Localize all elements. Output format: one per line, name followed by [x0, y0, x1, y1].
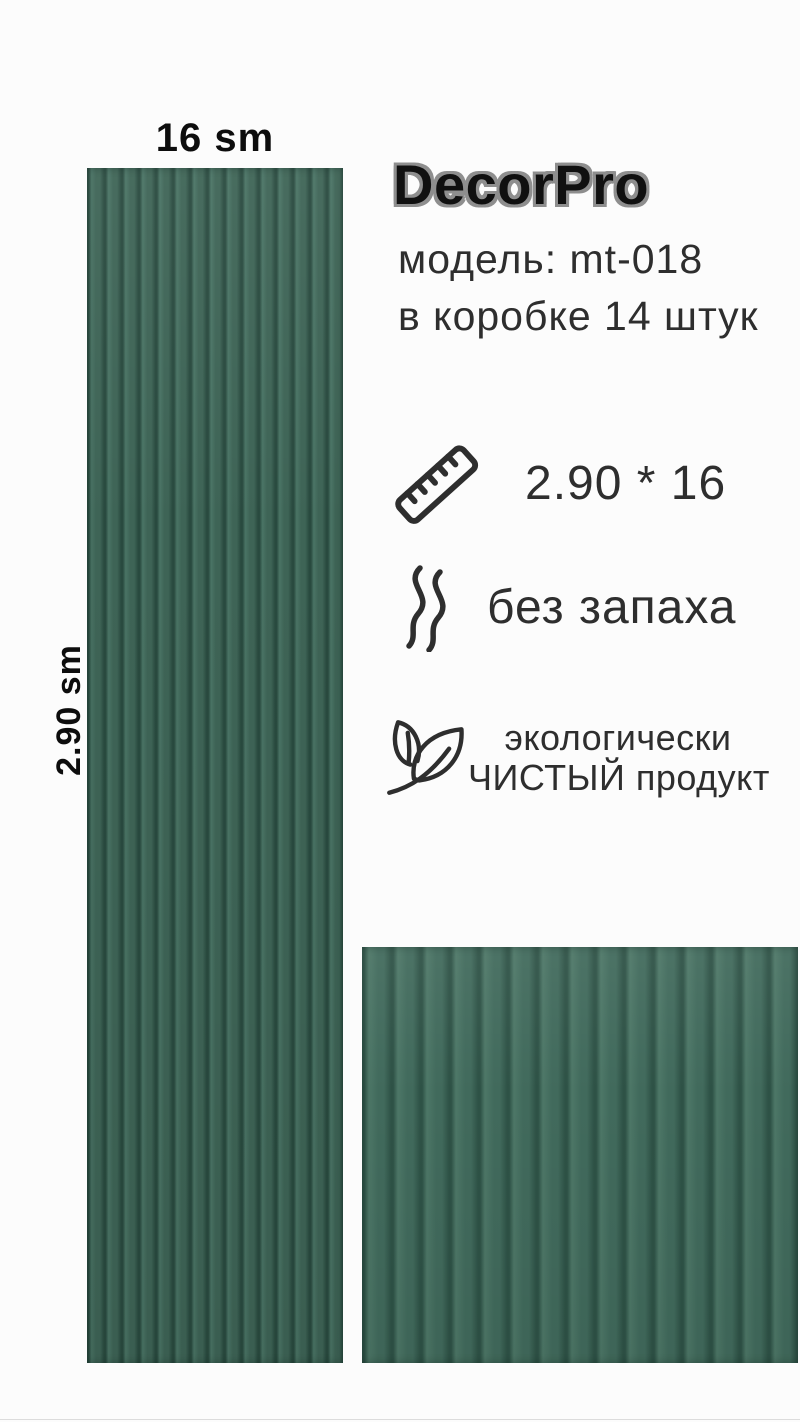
scent-icon [396, 562, 458, 652]
panel-photo-full [87, 168, 343, 1363]
feature-eco-line2: ЧИСТЫЙ продукт [468, 758, 768, 798]
image-bottom-edge [0, 1419, 800, 1420]
panel-photo-closeup [362, 947, 798, 1363]
brand-logo: DecorPro [393, 152, 649, 217]
leaf-icon [384, 708, 472, 800]
feature-size-text: 2.90 * 16 [525, 456, 726, 511]
feature-scent-text: без запаха [487, 580, 736, 635]
ruler-icon [388, 436, 486, 534]
panel-height-label: 2.90 sm [49, 640, 89, 780]
panel-width-label: 16 sm [87, 116, 343, 161]
product-card: 16 sm 2.90 sm DecorPro модель: mt-018 в … [0, 0, 800, 1422]
box-quantity-text: в коробке 14 штук [398, 293, 759, 340]
model-number-text: модель: mt-018 [398, 236, 703, 283]
feature-eco-text: экологически ЧИСТЫЙ продукт [468, 718, 768, 798]
feature-eco-line1: экологически [468, 718, 768, 758]
